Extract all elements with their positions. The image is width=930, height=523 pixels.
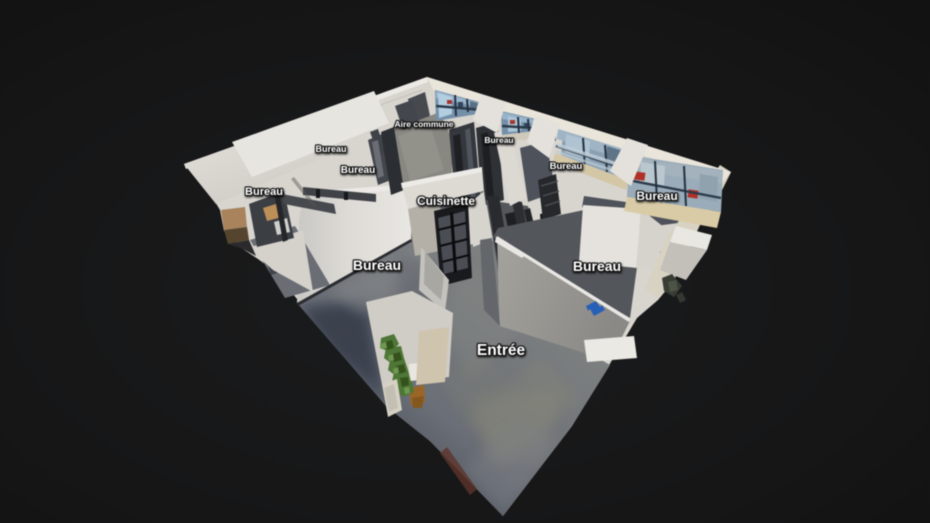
svg-text:Bureau: Bureau — [341, 165, 375, 176]
svg-text:Bureau: Bureau — [353, 257, 401, 273]
svg-text:Entrée: Entrée — [477, 342, 526, 359]
svg-text:Bureau: Bureau — [550, 161, 583, 172]
svg-text:Bureau: Bureau — [315, 144, 346, 154]
svg-text:Bureau: Bureau — [573, 258, 621, 274]
svg-text:Bureau: Bureau — [636, 189, 677, 203]
svg-text:Cuisinette: Cuisinette — [417, 194, 475, 208]
svg-text:Aire commune: Aire commune — [394, 119, 453, 129]
svg-text:Bureau: Bureau — [245, 186, 283, 198]
svg-text:Bureau: Bureau — [484, 135, 513, 145]
